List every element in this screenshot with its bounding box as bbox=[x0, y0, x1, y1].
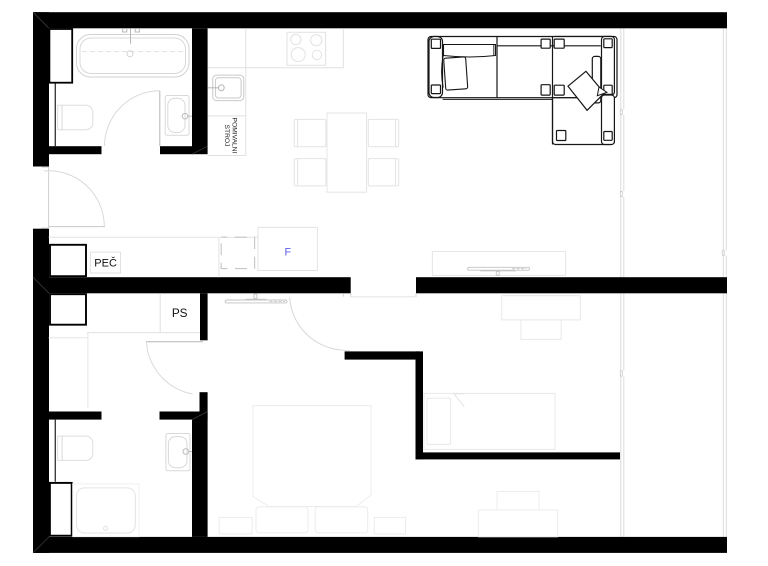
svg-text:PS: PS bbox=[172, 306, 188, 320]
svg-text:F: F bbox=[284, 247, 291, 259]
svg-text:PEČ: PEČ bbox=[94, 257, 117, 270]
